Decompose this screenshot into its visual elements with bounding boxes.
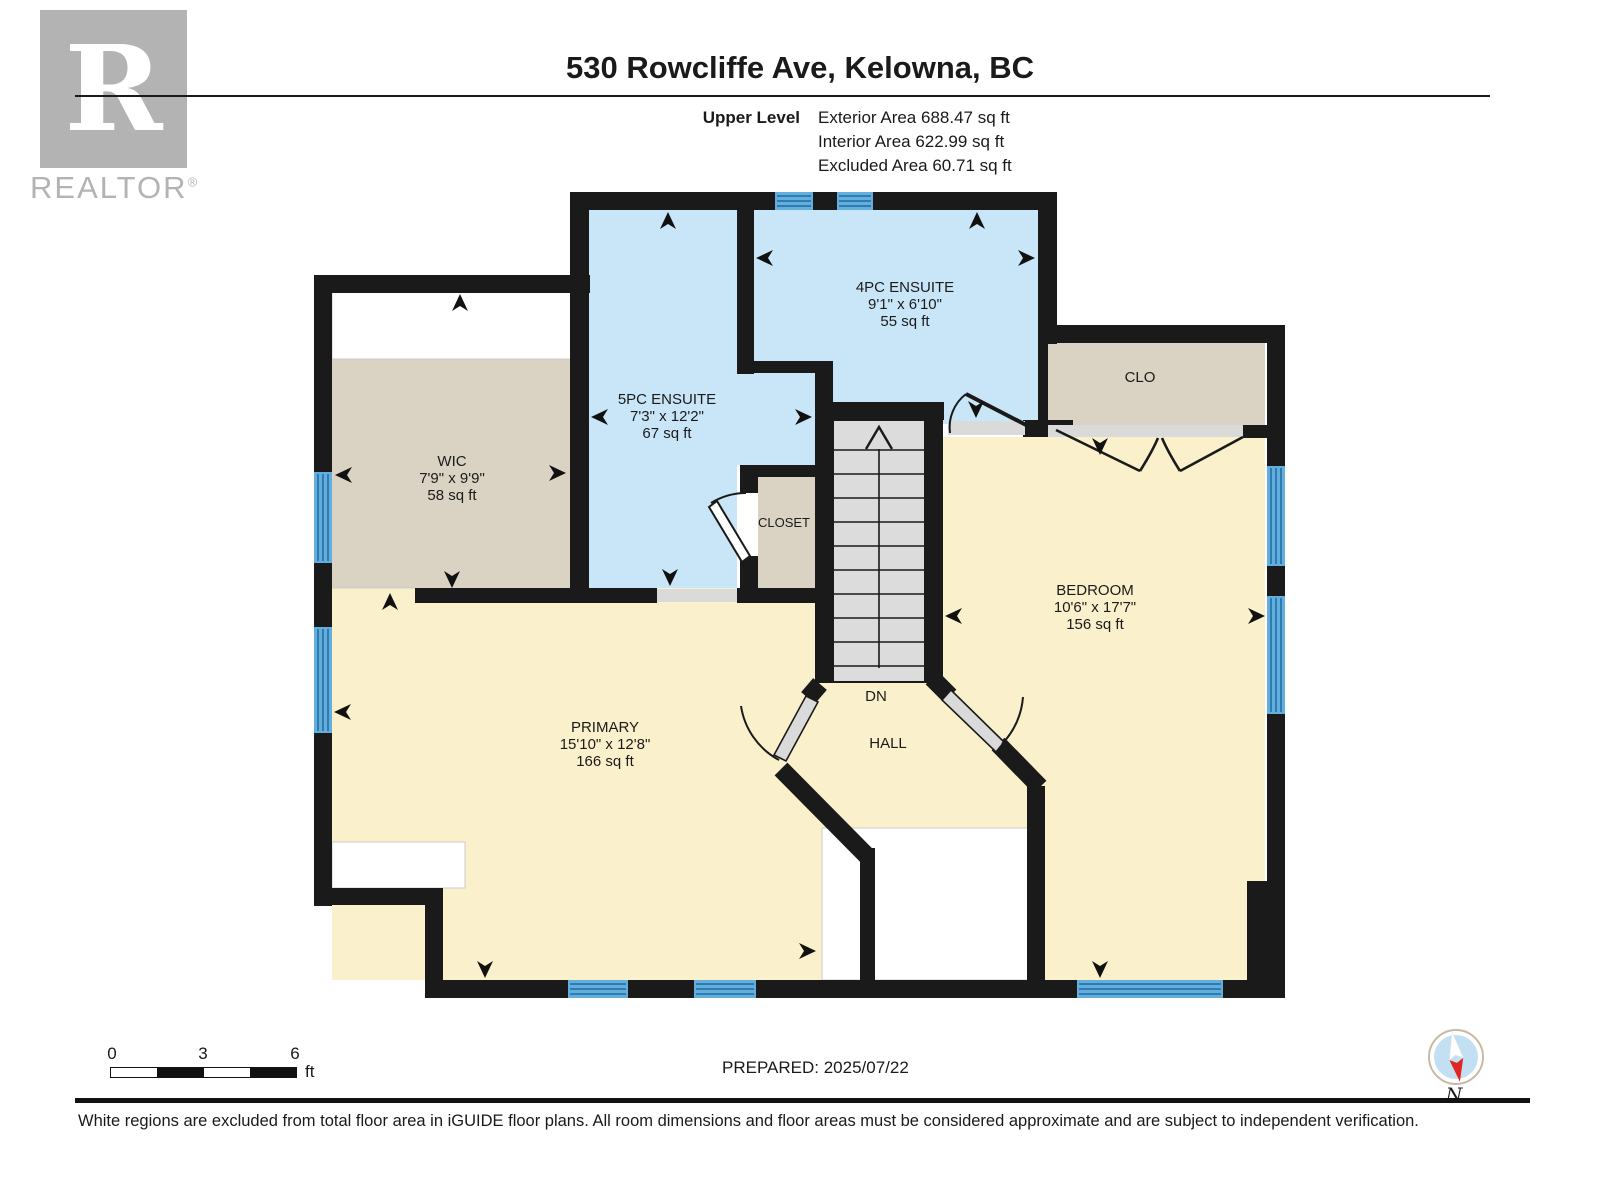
room-label-closet: CLOSET [758,515,810,530]
disclaimer-text: White regions are excluded from total fl… [78,1112,1528,1131]
svg-text:BEDROOM: BEDROOM [1056,582,1134,599]
svg-text:7'9" x 9'9": 7'9" x 9'9" [419,470,485,487]
svg-text:10'6" x 17'7": 10'6" x 17'7" [1054,599,1136,616]
scale-bar [110,1067,297,1078]
window [775,192,813,210]
window [1077,980,1223,998]
svg-text:4PC ENSUITE: 4PC ENSUITE [856,279,954,296]
stairs [833,420,925,682]
window [1267,596,1285,714]
window [694,980,756,998]
svg-text:58 sq ft: 58 sq ft [427,487,477,504]
floor-plan-page: R REALTOR® 530 Rowcliffe Ave, Kelowna, B… [0,0,1600,1200]
window [568,980,628,998]
scale-tick-0: 0 [100,1044,124,1064]
svg-text:15'10" x 12'8": 15'10" x 12'8" [560,736,651,753]
footer-divider [75,1098,1530,1103]
svg-text:156 sq ft: 156 sq ft [1066,616,1124,633]
svg-text:WIC: WIC [437,453,466,470]
svg-text:9'1" x 6'10": 9'1" x 6'10" [868,296,942,313]
svg-text:PRIMARY: PRIMARY [571,719,639,736]
window [314,627,332,733]
scale-unit: ft [305,1062,314,1082]
svg-text:5PC ENSUITE: 5PC ENSUITE [618,391,716,408]
scale-tick-6: 6 [283,1044,307,1064]
ensuite4pc-opening [948,421,1025,435]
svg-text:7'3" x 12'2": 7'3" x 12'2" [630,408,704,425]
primary-floor [332,588,833,980]
prepared-date: PREPARED: 2025/07/22 [722,1058,909,1078]
svg-text:55 sq ft: 55 sq ft [880,313,930,330]
ensuite5pc-opening [657,589,737,602]
room-label-clo: CLO [1125,369,1156,386]
clo-floor [1047,343,1265,425]
compass-icon: N [1424,1026,1488,1104]
excluded-wic [332,290,572,359]
floor-plan: WIC 7'9" x 9'9" 58 sq ft 5PC ENSUITE 7'3… [0,0,1600,1200]
scale-tick-3: 3 [191,1044,215,1064]
room-label-hall: HALL [869,735,907,752]
svg-text:166 sq ft: 166 sq ft [576,753,634,770]
closet-floor [758,477,815,588]
excluded-primary-notch [332,842,465,888]
svg-text:67 sq ft: 67 sq ft [642,425,692,442]
clo-door-track [1048,425,1243,437]
stairs-dn-label: DN [865,688,887,705]
window [314,472,332,563]
window [1267,466,1285,566]
window [837,192,873,210]
